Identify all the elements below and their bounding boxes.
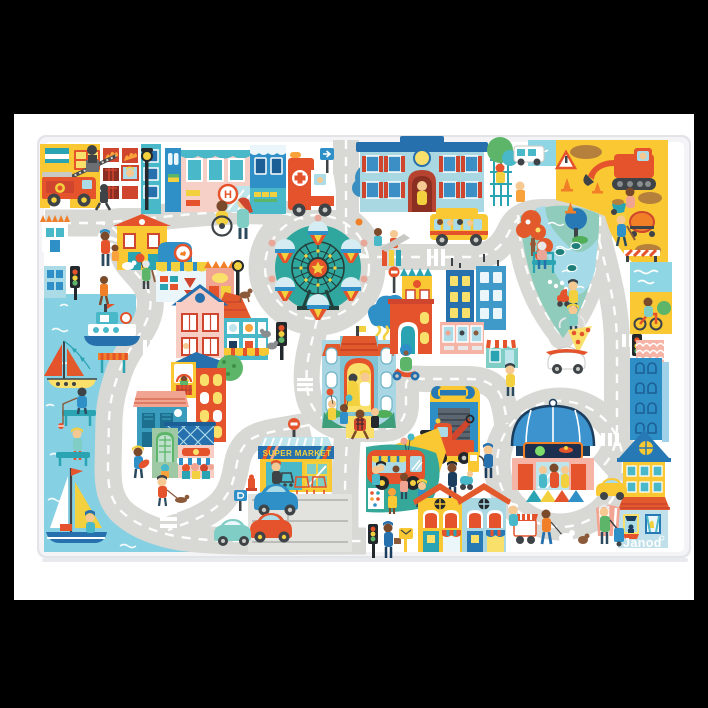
svg-text:Janod: Janod <box>623 536 662 550</box>
svg-text:SUPER MARKET: SUPER MARKET <box>263 449 332 458</box>
svg-text:H: H <box>224 189 232 201</box>
